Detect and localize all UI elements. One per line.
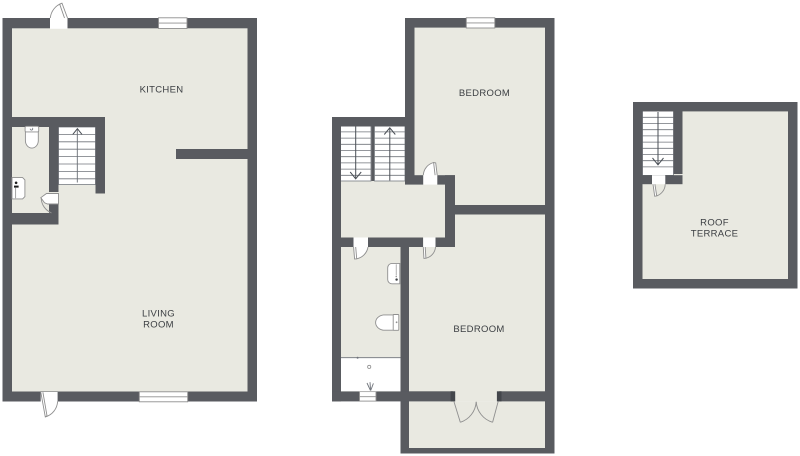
svg-text:ROOM: ROOM <box>143 320 174 331</box>
svg-text:LIVING: LIVING <box>142 309 175 320</box>
svg-text:BEDROOM: BEDROOM <box>453 324 504 335</box>
svg-text:BEDROOM: BEDROOM <box>459 88 510 99</box>
svg-text:KITCHEN: KITCHEN <box>140 85 184 96</box>
svg-text:ROOF: ROOF <box>700 218 729 229</box>
svg-text:TERRACE: TERRACE <box>691 229 739 240</box>
